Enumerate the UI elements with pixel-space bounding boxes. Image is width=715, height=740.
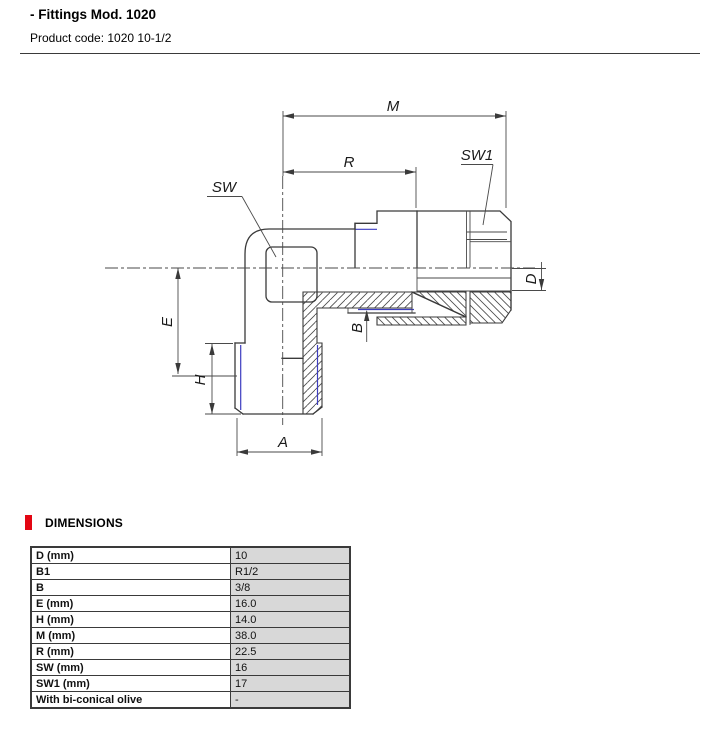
table-row: R (mm) 22.5 bbox=[31, 644, 350, 660]
dimension-D: D bbox=[512, 262, 546, 291]
dimension-A: A bbox=[237, 418, 322, 456]
table-row: H (mm) 14.0 bbox=[31, 612, 350, 628]
table-row: SW1 (mm) 17 bbox=[31, 676, 350, 692]
product-code: Product code: 1020 10-1/2 bbox=[30, 31, 171, 45]
sleeve-section bbox=[377, 317, 466, 325]
dimension-H: H bbox=[192, 344, 241, 415]
red-accent-bar bbox=[25, 515, 32, 530]
dimensions-section-header: DIMENSIONS bbox=[25, 514, 123, 531]
dimension-R: R bbox=[283, 154, 416, 208]
dim-label-D: D bbox=[523, 273, 540, 284]
technical-drawing: M R E H A bbox=[90, 95, 560, 470]
row-value: 17 bbox=[231, 676, 351, 692]
nut-section bbox=[470, 292, 511, 323]
dim-label-E: E bbox=[159, 316, 176, 327]
row-label: M (mm) bbox=[31, 628, 231, 644]
dimension-E: E bbox=[159, 268, 237, 376]
dim-label-H: H bbox=[192, 374, 209, 385]
row-label: B1 bbox=[31, 564, 231, 580]
dimension-B: B bbox=[349, 310, 369, 342]
section-hatching bbox=[303, 292, 511, 414]
row-value: R1/2 bbox=[231, 564, 351, 580]
page-title: - Fittings Mod. 1020 bbox=[30, 7, 156, 22]
table-row: D (mm) 10 bbox=[31, 547, 350, 564]
table-row: With bi-conical olive - bbox=[31, 692, 350, 709]
row-label: SW1 (mm) bbox=[31, 676, 231, 692]
row-value: 14.0 bbox=[231, 612, 351, 628]
elbow-section bbox=[303, 292, 412, 414]
table-row: B 3/8 bbox=[31, 580, 350, 596]
dim-label-R: R bbox=[344, 154, 355, 171]
table-row: B1 R1/2 bbox=[31, 564, 350, 580]
dim-label-SW1: SW1 bbox=[461, 147, 494, 164]
label-SW: SW bbox=[207, 179, 276, 257]
table-row: M (mm) 38.0 bbox=[31, 628, 350, 644]
row-label: R (mm) bbox=[31, 644, 231, 660]
label-SW1: SW1 bbox=[461, 147, 494, 225]
row-label: SW (mm) bbox=[31, 660, 231, 676]
row-value: - bbox=[231, 692, 351, 709]
row-value: 16 bbox=[231, 660, 351, 676]
fitting-outline bbox=[235, 211, 511, 414]
row-value: 38.0 bbox=[231, 628, 351, 644]
dim-label-A: A bbox=[277, 434, 288, 451]
dim-label-M: M bbox=[387, 98, 400, 115]
row-label: H (mm) bbox=[31, 612, 231, 628]
row-value: 10 bbox=[231, 547, 351, 564]
dim-label-B: B bbox=[349, 323, 366, 333]
row-label: D (mm) bbox=[31, 547, 231, 564]
dim-label-SW: SW bbox=[212, 179, 238, 196]
table-row: SW (mm) 16 bbox=[31, 660, 350, 676]
row-label: E (mm) bbox=[31, 596, 231, 612]
row-value: 3/8 bbox=[231, 580, 351, 596]
row-label: With bi-conical olive bbox=[31, 692, 231, 709]
header-divider bbox=[20, 53, 700, 54]
table-row: E (mm) 16.0 bbox=[31, 596, 350, 612]
dimensions-table: D (mm) 10 B1 R1/2 B 3/8 E (mm) 16.0 H (m… bbox=[30, 546, 351, 709]
row-value: 22.5 bbox=[231, 644, 351, 660]
dimensions-title: DIMENSIONS bbox=[45, 516, 123, 530]
row-label: B bbox=[31, 580, 231, 596]
row-value: 16.0 bbox=[231, 596, 351, 612]
catalog-page: - Fittings Mod. 1020 Product code: 1020 … bbox=[0, 0, 715, 740]
